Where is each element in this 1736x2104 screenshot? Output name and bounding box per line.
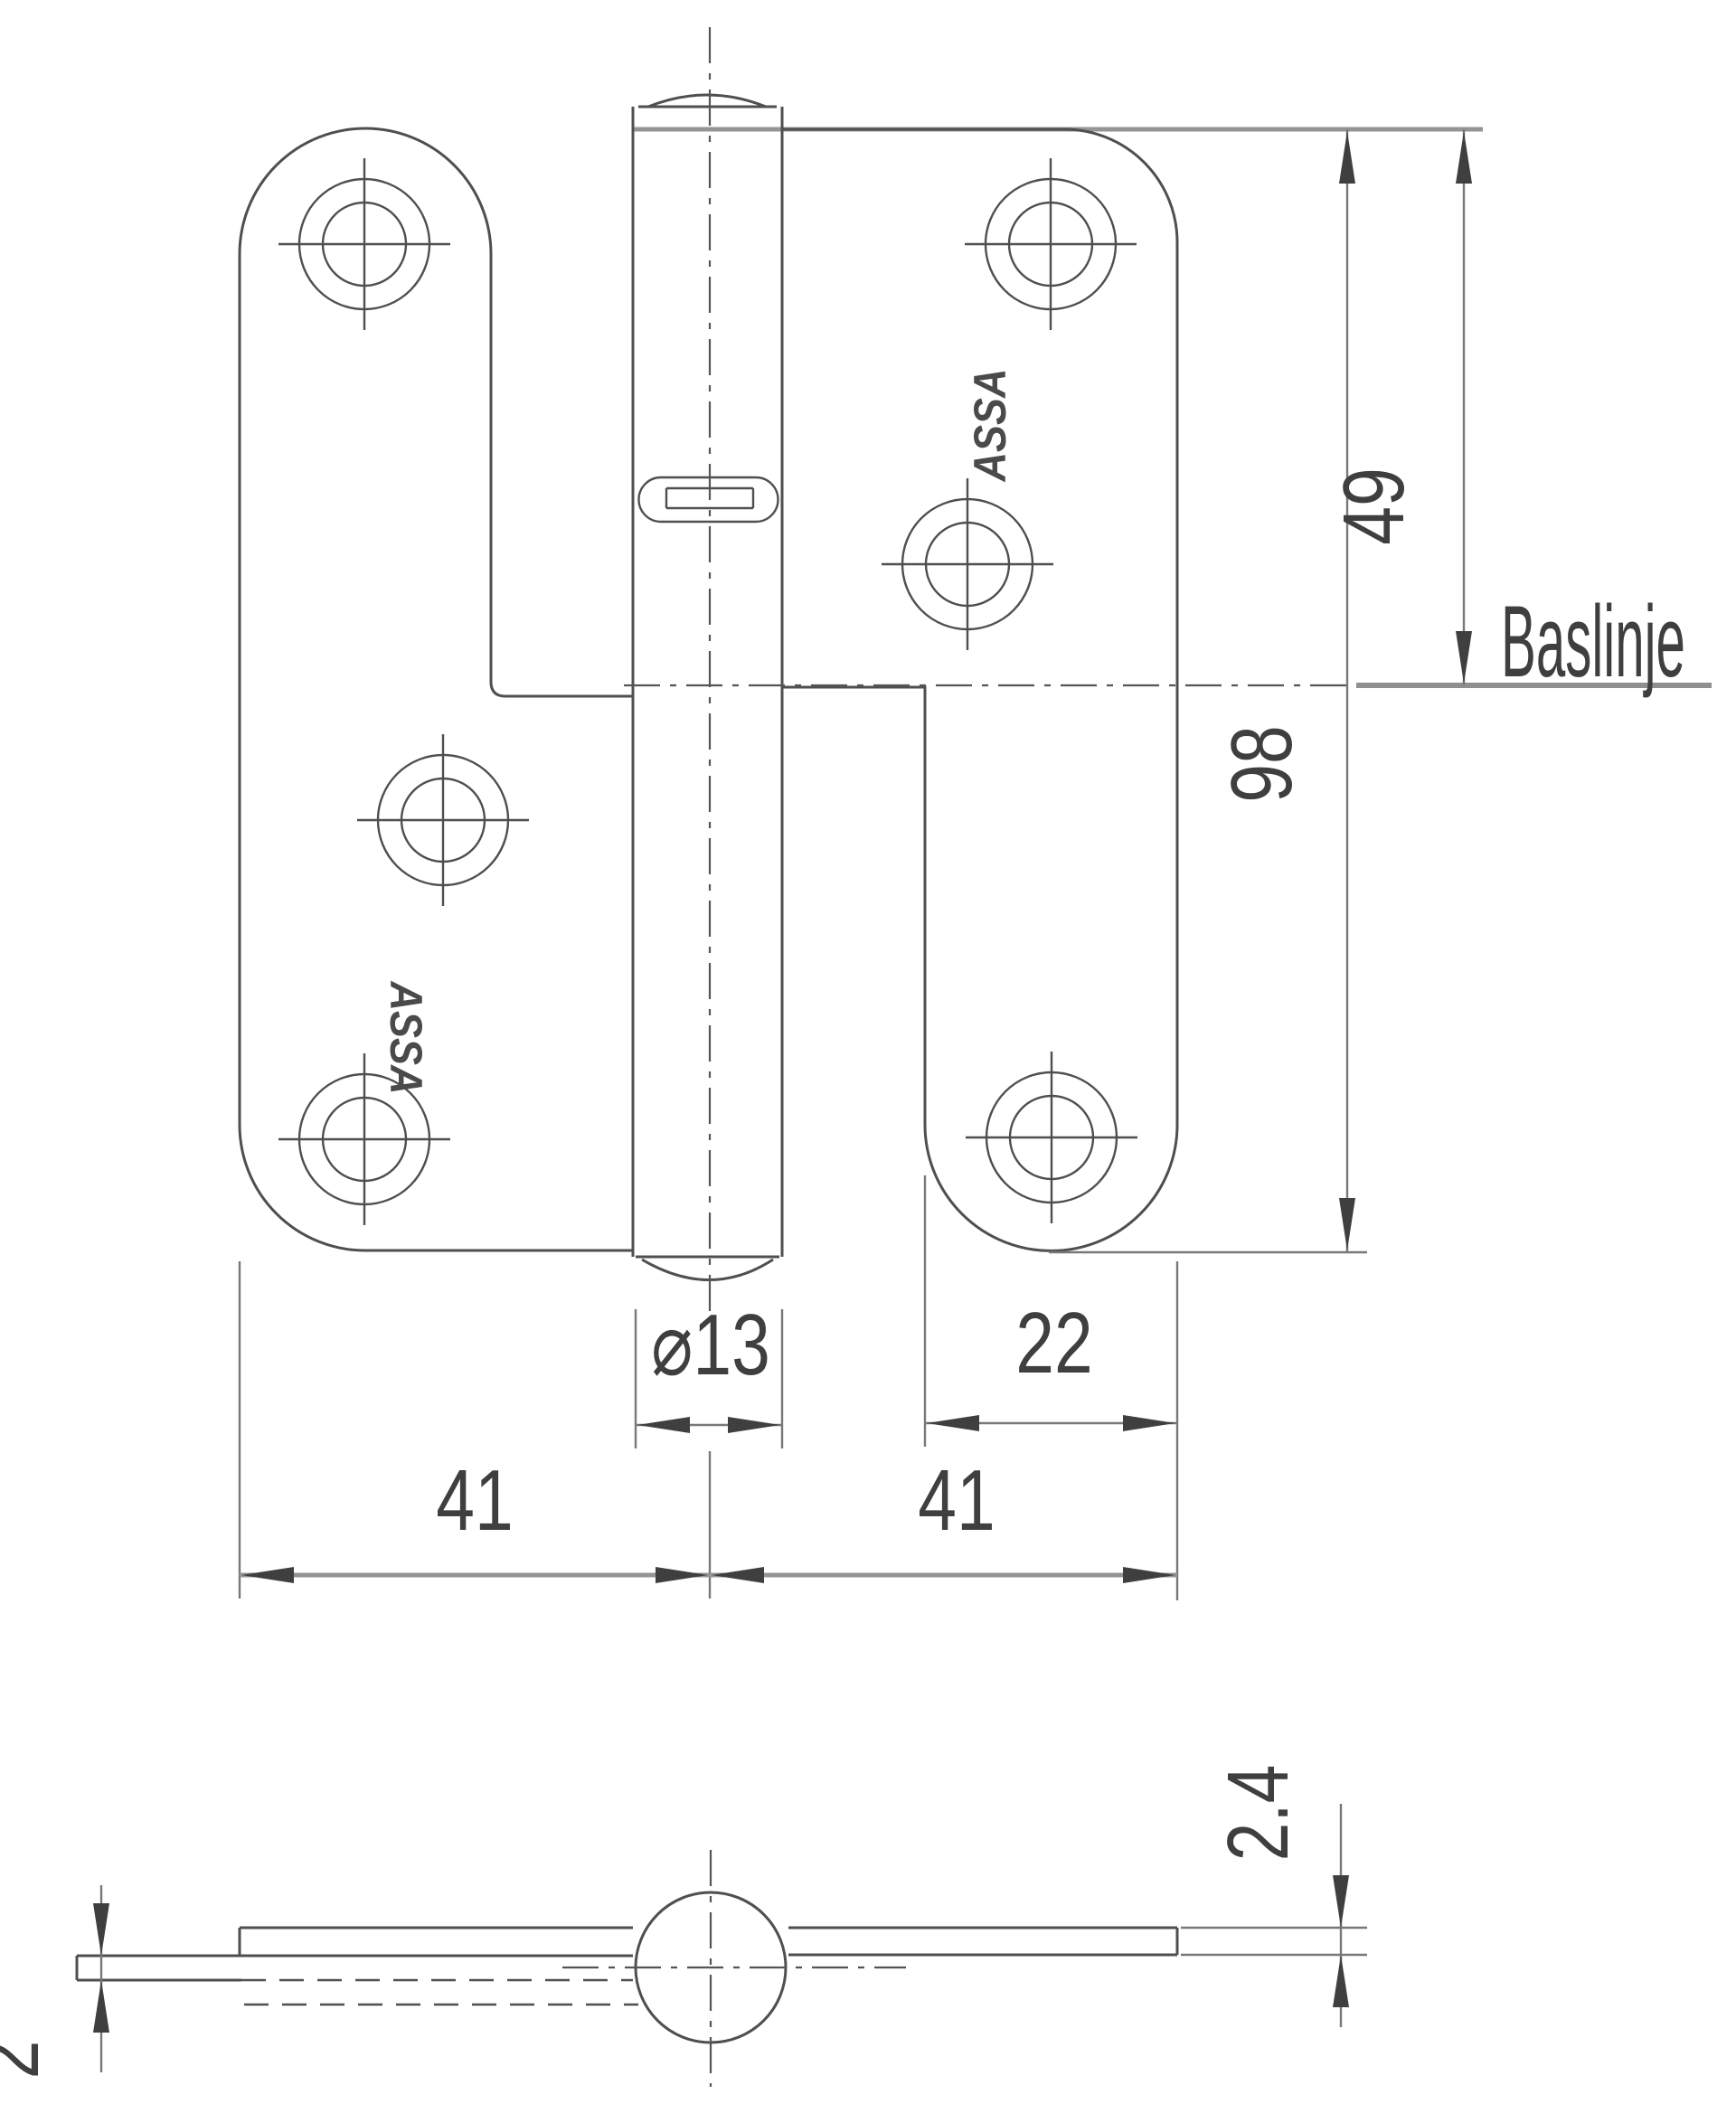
dim-41-left-label: 41	[436, 1452, 513, 1549]
screw-hole-right-top	[965, 158, 1137, 330]
brand-stamp-left: ASSA	[380, 981, 430, 1095]
screw-hole-left-middle	[357, 734, 529, 906]
screw-hole-right-middle	[882, 478, 1053, 650]
screw-hole-left-top	[278, 158, 450, 330]
right-leaf-outline	[782, 129, 1177, 1250]
front-view: ASSA ASSA	[240, 27, 1712, 1600]
drawing-canvas: ASSA ASSA	[0, 0, 1736, 2104]
dim-49-label: 49	[1326, 467, 1422, 544]
dim-2-arrow-bottom	[93, 1980, 109, 2033]
dim-2_4-arrow-top	[1333, 1875, 1349, 1928]
pin-slot	[639, 477, 778, 522]
dim-pin-diameter-label: ⌀13	[651, 1297, 770, 1393]
dim-22-label: 22	[1015, 1295, 1092, 1392]
dim-2-arrow-top	[93, 1903, 109, 1956]
dim-41-right-label: 41	[918, 1452, 995, 1549]
left-leaf-outline	[240, 128, 633, 1125]
hinge-technical-drawing: ASSA ASSA	[0, 0, 1736, 2104]
screw-hole-right-bottom	[966, 1052, 1137, 1223]
pin-bottom-cap-dome	[642, 1260, 773, 1280]
dim-2_4-label: 2.4	[1210, 1765, 1307, 1862]
dim-98-label: 98	[1213, 725, 1310, 802]
baseline-label: Baslinje	[1501, 584, 1685, 697]
dimension-lines	[240, 1423, 1177, 1575]
brand-stamp-right: ASSA	[966, 369, 1016, 483]
pin-top-cap-dome	[648, 95, 766, 107]
dim-2-label: 2	[0, 2041, 57, 2080]
extension-lines	[240, 129, 1464, 1600]
side-view: 2.4 2	[0, 1765, 1367, 2087]
dim-2_4-arrow-bottom	[1333, 1955, 1349, 2007]
